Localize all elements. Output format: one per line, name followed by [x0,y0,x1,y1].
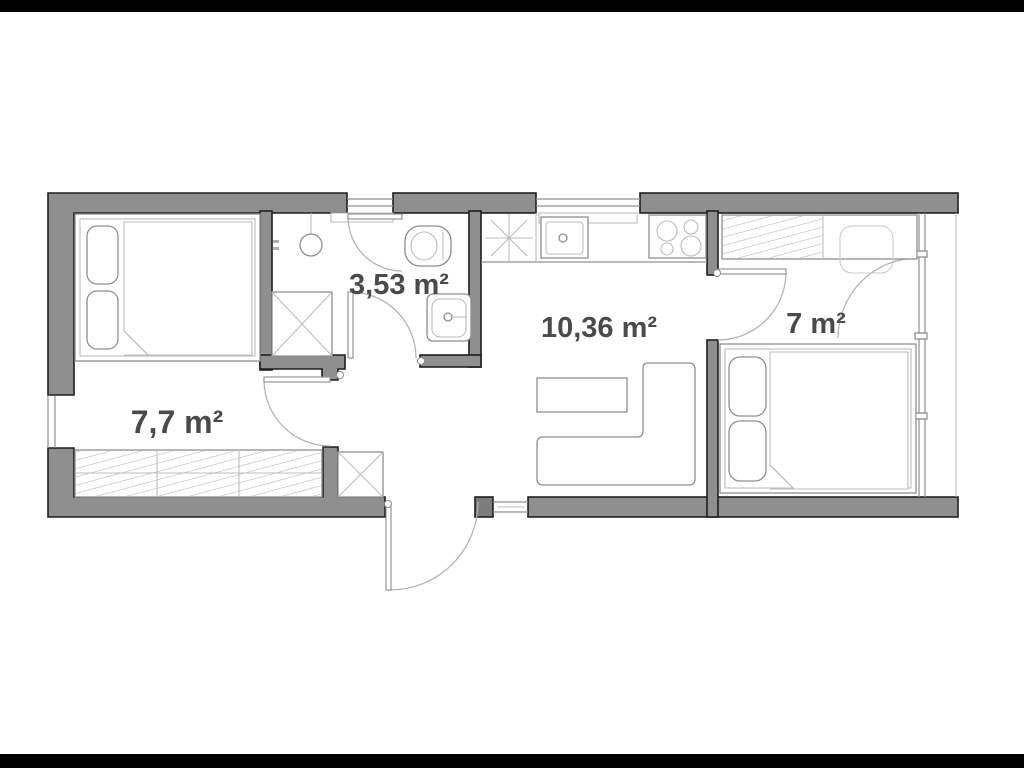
ceiling-lamp [273,213,322,256]
wall-shower-bottom [260,355,345,380]
letterbox-bottom [0,754,1024,768]
washbasin [427,294,471,341]
toilet [405,226,451,266]
entry-cabinet [338,452,383,497]
wall-bathroom-east [469,211,481,367]
wardrobe-bedroom1 [75,450,322,497]
blanket [124,222,252,355]
pillow [729,357,766,416]
wall-bathroom-bottom [420,355,481,367]
bathroom-door [348,292,425,365]
room-label-bedroom2: 7 m² [786,308,846,340]
wall-top-middle [393,193,536,213]
corner-sofa [537,363,695,485]
wall-bottom-right [528,497,958,517]
double-bed-2 [720,344,916,493]
entry-door [385,501,479,591]
pillow [87,226,118,284]
floor-plan-page: 7,7 m² 3,53 m² 10,36 m² 7 m² [0,0,1024,768]
living-furniture [338,363,695,497]
blanket [770,352,908,489]
pillow [87,291,118,349]
balcony-door [838,258,918,338]
double-bed-1 [75,214,260,361]
wall-bedroom2-west-lower [707,340,718,517]
room-label-bedroom1: 7,7 m² [131,404,223,440]
cooktop-4-burner [649,215,706,258]
wall-bathroom-west [260,211,272,370]
boiler-star-symbol [485,214,533,262]
room-label-living-kitchen: 10,36 m² [541,312,657,344]
letterbox-top [0,0,1024,12]
window-east-glazed-wall [915,213,956,497]
pillow [729,421,766,481]
window-bedroom1-left [48,396,55,448]
wall-bedroom2-west-upper [707,211,718,275]
window-entry-sidelight [493,502,528,512]
dining-table [537,378,627,412]
bathroom-window-casement [348,214,402,271]
floor-plan-drawing: 7,7 m² 3,53 m² 10,36 m² 7 m² [0,0,1024,768]
wall-top-right [640,193,958,213]
shower-cabin [272,292,332,356]
kitchen-sink [541,217,588,258]
bedroom2-furniture [720,215,917,493]
room-label-bathroom: 3,53 m² [349,269,449,301]
bedroom2-door [714,269,787,340]
bedroom1-door [264,372,344,447]
